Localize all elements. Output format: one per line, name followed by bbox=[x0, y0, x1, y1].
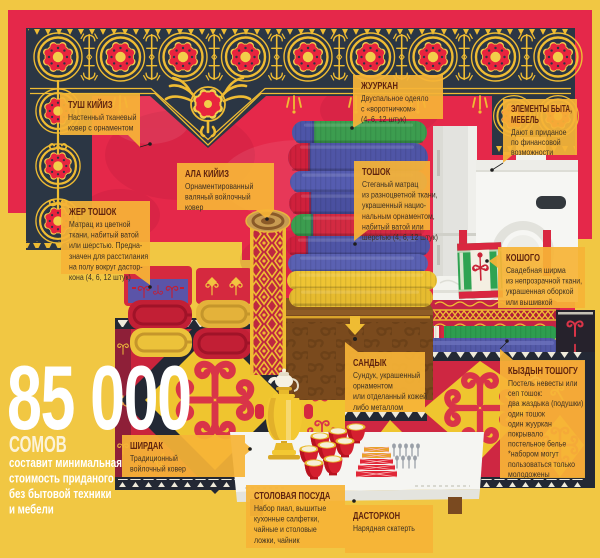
svg-text:ЖЕР ТОШОК: ЖЕР ТОШОК bbox=[68, 206, 116, 217]
svg-text:КОШОГО: КОШОГО bbox=[506, 252, 540, 263]
svg-text:ЖУУРКАН: ЖУУРКАН bbox=[360, 80, 398, 91]
svg-text:КЫЗДЫН ТОШОГУ: КЫЗДЫН ТОШОГУ bbox=[508, 365, 578, 376]
svg-text:ТОШОК: ТОШОК bbox=[362, 166, 391, 177]
svg-text:САНДЫК: САНДЫК bbox=[353, 357, 387, 368]
svg-text:ТУШ КИЙИЗ: ТУШ КИЙИЗ bbox=[68, 98, 113, 111]
svg-text:Нарядная скатерть: Нарядная скатерть bbox=[353, 523, 415, 533]
svg-text:ДАСТОРКОН: ДАСТОРКОН bbox=[353, 510, 400, 521]
svg-text:СОМОВ: СОМОВ bbox=[9, 432, 67, 458]
svg-text:Традиционныйвойлочный ковер: Традиционныйвойлочный ковер bbox=[130, 453, 186, 473]
svg-text:АЛА КИЙИЗ: АЛА КИЙИЗ bbox=[185, 167, 229, 180]
svg-text:МЕБЕЛЬ: МЕБЕЛЬ bbox=[511, 113, 539, 125]
svg-text:Настенный тканевыйковер с орна: Настенный тканевыйковер с орнаментом bbox=[68, 112, 136, 132]
svg-text:ШИРДАК: ШИРДАК bbox=[130, 440, 163, 451]
svg-text:СТОЛОВАЯ ПОСУДА: СТОЛОВАЯ ПОСУДА bbox=[254, 490, 331, 501]
